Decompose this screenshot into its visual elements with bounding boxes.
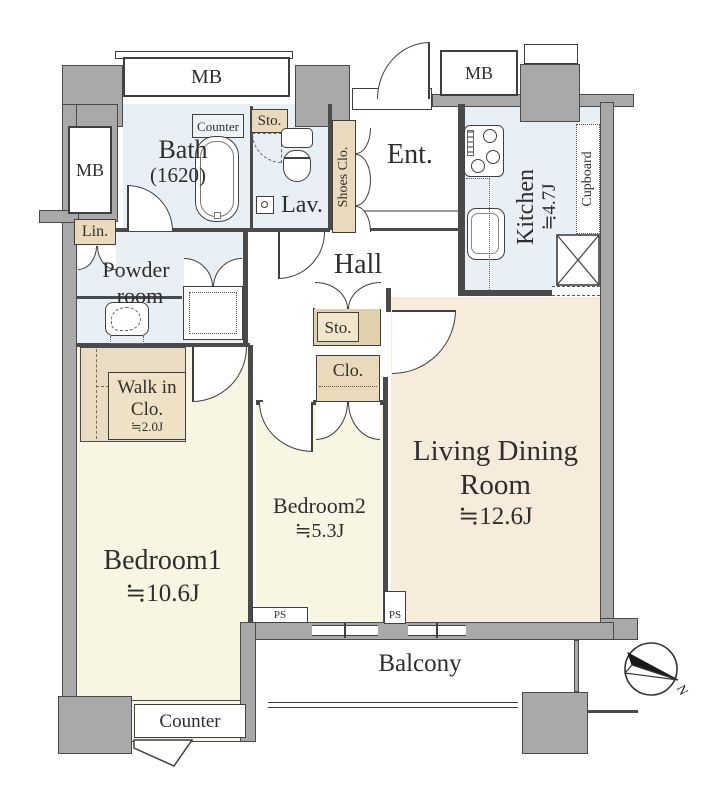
washbasin-legs: [110, 336, 144, 344]
entrance-door-arc: [377, 42, 430, 99]
wall-pillar-top-right: [520, 64, 580, 122]
living-dining-label-2: Room: [391, 470, 600, 502]
storage-hall-arc-left: [315, 282, 348, 309]
wall-kitchen-bottom: [458, 290, 554, 296]
bedroom2-name-label: Bedroom2: [256, 494, 383, 518]
living-dining-size-label: ≒12.6J: [391, 503, 600, 531]
stove-grill: [467, 130, 474, 156]
mb-side-label: MB: [76, 161, 104, 179]
lavatory-control-knob: [261, 201, 268, 208]
bedroom1-size-label: ≒10.6J: [77, 580, 248, 608]
stove-icon: [464, 125, 504, 177]
storage-hall-arc-right: [348, 282, 381, 309]
shoes-closet-label: Shoes Clo.: [336, 122, 352, 232]
kitchen-size-label: ≒4.7J: [540, 183, 561, 230]
kitchen-counter-dotted-v: [489, 178, 490, 290]
wall-right: [600, 102, 614, 640]
toilet-seat-icon: [283, 150, 311, 182]
wall-bedroom1-right: [248, 345, 253, 622]
walkin-label-line1: Walk in: [117, 377, 176, 399]
compass-north-label: N: [674, 682, 692, 698]
bedroom1-counter-box: Counter: [134, 704, 246, 738]
storage-bath-label: Sto.: [258, 114, 282, 129]
mb-box-top-left: MB: [123, 57, 290, 97]
kitchen-name-label: Kitchen: [513, 169, 539, 245]
lavatory-label: Lav.: [270, 192, 334, 218]
shoes-door-arc-3: [356, 180, 371, 206]
living-window: [408, 625, 466, 636]
sink-inner: [471, 213, 499, 254]
bedroom1-name-label: Bedroom1: [77, 546, 248, 577]
walkin-label-line2: Clo.: [131, 399, 163, 421]
toilet-icon: [281, 128, 313, 148]
sink-icon: [467, 208, 505, 260]
compass-icon: N: [616, 634, 694, 712]
powder-room-label-2: room: [80, 284, 200, 308]
walkin-size-label: ≒2.0J: [131, 420, 163, 435]
ps-box-2: PS: [384, 591, 406, 624]
entrance-label: Ent.: [360, 140, 460, 171]
ps-box-1: PS: [252, 607, 308, 623]
toilet-seat-line: [284, 157, 310, 159]
wall-balcony-pillar: [522, 692, 588, 754]
balcony-label: Balcony: [340, 650, 500, 678]
closet-label: Clo.: [333, 361, 364, 379]
window-tick: [344, 623, 346, 638]
stove-burner-2: [486, 150, 500, 164]
linen-closet-chip: Lin.: [74, 219, 116, 245]
powder-room-label-1: Powder: [76, 258, 196, 282]
living-dining-label-1: Living Dining: [391, 436, 600, 468]
balcony-railing: [268, 702, 518, 708]
walkin-dashed-vertical: [96, 349, 97, 439]
wall-ldr-left-upper: [386, 288, 391, 312]
notched-duct-box: [524, 44, 578, 64]
storage-hall-label: Sto.: [325, 319, 352, 336]
floor-plan: MB MB MB Lin. Sto. Counter Shoes Clo. St…: [0, 0, 706, 800]
entrance-step-line: [358, 210, 458, 212]
wall-pillar-top-middle: [295, 65, 350, 127]
stove-burner-1: [483, 129, 497, 143]
mb-top-left-label: MB: [191, 67, 222, 87]
wall-entrance-bottom: [356, 228, 458, 231]
bath-name-label: Bath: [123, 136, 243, 165]
closet-box: Clo.: [316, 355, 380, 402]
storage-hall-chip: Sto.: [317, 312, 359, 342]
wall-pillar-bottom-left: [58, 696, 132, 754]
bedroom1-counter-label: Counter: [159, 712, 220, 731]
closet-dotted-line: [319, 386, 377, 387]
wall-powder-right: [243, 230, 248, 345]
kitchen-counter-dotted-h: [466, 178, 490, 179]
walkin-label-box: Walk in Clo. ≒2.0J: [108, 372, 186, 440]
bathtub-drain: [214, 212, 221, 219]
mb-box-top-right: MB: [440, 50, 518, 96]
wall-balcony-stem: [574, 640, 579, 692]
window-tick: [436, 623, 438, 638]
washbasin-bowl: [111, 307, 141, 331]
ps-1-label: PS: [274, 610, 286, 621]
hall-label: Hall: [308, 250, 408, 281]
cupboard-label: Cupboard: [580, 129, 596, 229]
bedroom2-window: [312, 625, 378, 636]
kitchen-ldr-hatch-strip: [552, 286, 600, 296]
mb-box-side: MB: [68, 126, 112, 214]
kitchen-label-block: Kitchen ≒4.7J: [509, 147, 565, 267]
ps-2-label: PS: [389, 610, 401, 621]
bath-counter-label: Counter: [197, 120, 239, 133]
bath-size-label: (1620): [118, 164, 238, 187]
bedroom1-window-swing-icon: [132, 738, 198, 770]
stove-burner-3: [471, 159, 485, 173]
wall-bedroom2-right: [383, 377, 388, 622]
mb-top-right-label: MB: [465, 64, 493, 82]
linen-label: Lin.: [82, 224, 108, 240]
bedroom2-size-label: ≒5.3J: [256, 520, 383, 542]
